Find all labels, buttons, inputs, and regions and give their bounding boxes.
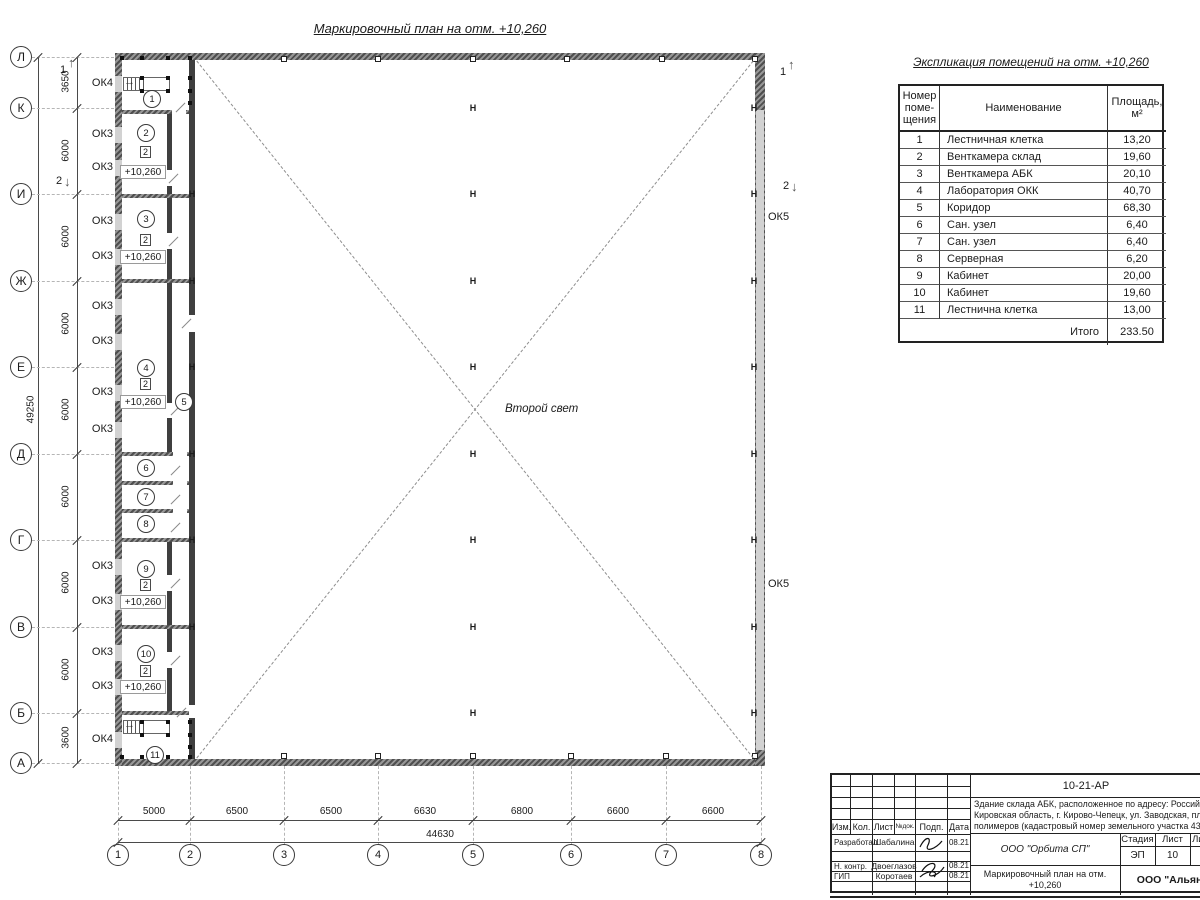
column-dot-0: [120, 56, 124, 60]
grid-axis-stub-row-В: [32, 627, 114, 628]
door-leaf-5: [171, 466, 181, 476]
tb-date: 08.21: [948, 861, 970, 871]
door-opening-3: [167, 233, 172, 249]
steel-column-symbol: H: [749, 189, 759, 199]
expl-row-area: 68,30: [1108, 200, 1166, 217]
door-opening-1: [189, 705, 195, 718]
expl-row-name: Венткамера АБК: [940, 166, 1108, 183]
door-leaf-6: [171, 495, 181, 505]
section-mark-arrow: ↓: [64, 174, 71, 189]
tb-stage-value: 10: [1155, 846, 1190, 865]
steel-column-symbol: H: [187, 449, 197, 459]
grid-bubble-row-К: К: [10, 97, 32, 119]
section-mark-arrow: ↑: [788, 57, 795, 72]
tb-header-cell: Подп.: [916, 820, 947, 833]
wall-top: [115, 53, 765, 60]
grid-axis-stub-row-Ж: [32, 281, 114, 282]
dim-line-vertical-segments: [77, 57, 78, 763]
door-opening-5: [167, 575, 172, 591]
level-mark: +10,260: [120, 680, 166, 694]
tb-header-cell: Лист: [873, 820, 894, 833]
expl-row-area: 20,10: [1108, 166, 1166, 183]
window-ок3-8: [115, 422, 122, 438]
wall-room-divider-2: [122, 279, 189, 283]
expl-row-area: 6,20: [1108, 251, 1166, 268]
window-label-ok5: ОК5: [768, 578, 789, 590]
section-mark-number: 1: [780, 66, 786, 78]
tb-hline: [832, 786, 970, 787]
expl-row-name: Лаборатория ОКК: [940, 183, 1108, 200]
column-dot-16: [166, 720, 170, 724]
expl-row-name: Коридор: [940, 200, 1108, 217]
tb-role: ГИП: [834, 872, 874, 882]
wall-bottom: [115, 759, 765, 766]
window-label-ок3: ОК3: [86, 386, 113, 398]
window-ок4-13: [115, 732, 122, 748]
stair-arrow-1: →: [124, 76, 135, 88]
tb-hline: [832, 797, 970, 798]
grid-bubble-col-2: 2: [179, 844, 201, 866]
section-mark-number: 2: [56, 175, 62, 187]
expl-row-area: 13,20: [1108, 132, 1166, 149]
steel-column-symbol: H: [468, 449, 478, 459]
explication-title: Экспликация помещений на отм. +10,260: [898, 55, 1164, 69]
column-dot-19: [166, 733, 170, 737]
grid-axis-stub-row-И: [32, 194, 114, 195]
expl-row-name: Кабинет: [940, 268, 1108, 285]
steel-column-symbol: H: [187, 362, 197, 372]
column-square-1: [375, 56, 381, 62]
room-number-4: 4: [137, 359, 155, 377]
signatures: [916, 833, 948, 881]
tb-date: 08.21: [948, 834, 970, 851]
dim-text-horizontal: 6800: [492, 806, 552, 817]
expl-row-num: 7: [900, 234, 940, 251]
tb-hline: [970, 797, 1200, 798]
window-label-ок3: ОК3: [86, 335, 113, 347]
expl-row-num: 5: [900, 200, 940, 217]
column-dot-17: [188, 720, 192, 724]
grid-bubble-row-Л: Л: [10, 46, 32, 68]
expl-row-name: Лестнична клетка: [940, 302, 1108, 319]
grid-axis-stub-col-6: [571, 766, 572, 846]
tb-org: ООО "Орбита СП": [970, 833, 1120, 865]
dim-text-vertical: 6000: [61, 380, 72, 440]
dim-line-horizontal-overall: [118, 842, 761, 843]
column-dot-14: [188, 755, 192, 759]
dim-text-horizontal: 6630: [395, 806, 455, 817]
tb-role: Разработал: [834, 838, 874, 848]
window-ок3-5: [115, 299, 122, 315]
door-opening-4: [167, 403, 172, 418]
stair-tread-11-2: [135, 721, 136, 733]
title-block: Изм.Кол.Лист№док.Подп.ДатаРазработалШаба…: [830, 773, 1200, 893]
level-mark: +10,260: [120, 165, 166, 179]
drawing-sheet: Маркировочный план на отм. +10,260 HHHHH…: [0, 0, 1200, 900]
tb-hline: [832, 808, 970, 809]
window-label-ок3: ОК3: [86, 680, 113, 692]
window-ок4-0: [115, 76, 122, 92]
column-dot-21: [188, 745, 192, 749]
column-dot-9: [188, 89, 192, 93]
window-label-ок3: ОК3: [86, 560, 113, 572]
grid-bubble-col-3: 3: [273, 844, 295, 866]
steel-column-symbol: H: [468, 362, 478, 372]
floor-plan: HHHHHHHHHHHHHHHHHHHHHH→→ЛКИЖЕДГВБА365060…: [0, 0, 830, 900]
column-square-0: [281, 56, 287, 62]
grid-bubble-row-И: И: [10, 183, 32, 205]
grid-axis-stub-col-2: [190, 766, 191, 846]
expl-header-num: Номер поме- щения: [900, 86, 940, 132]
stair-tread-1-2: [135, 78, 136, 90]
dim-line-vertical-overall: [38, 57, 39, 763]
level-mark: +10,260: [120, 595, 166, 609]
window-ок3-1: [115, 127, 122, 143]
expl-row-num: 6: [900, 217, 940, 234]
expl-row-area: 20,00: [1108, 268, 1166, 285]
tb-stage-header: Лист: [1155, 833, 1190, 846]
steel-column-symbol: H: [468, 276, 478, 286]
expl-row-name: Серверная: [940, 251, 1108, 268]
grid-bubble-row-Ж: Ж: [10, 270, 32, 292]
dim-text-vertical: 6000: [61, 207, 72, 267]
expl-row-name: Венткамера склад: [940, 149, 1108, 166]
unit-mark: 2: [140, 378, 151, 390]
column-dot-8: [166, 89, 170, 93]
door-opening-9: [173, 481, 187, 485]
steel-column-symbol: H: [468, 189, 478, 199]
expl-row-num: 3: [900, 166, 940, 183]
window-label-ок3: ОК3: [86, 300, 113, 312]
unit-mark: 2: [140, 234, 151, 246]
tb-object-desc-line: Здание склада АБК, расположенное по адре…: [974, 799, 1200, 810]
window-label-ок3: ОК3: [86, 423, 113, 435]
tb-hline: [832, 881, 970, 882]
expl-row-name: Сан. узел: [940, 217, 1108, 234]
grid-axis-stub-col-4: [378, 766, 379, 846]
window-label-ок3: ОК3: [86, 595, 113, 607]
section-mark-arrow: ↑: [68, 55, 75, 70]
room-number-11: 11: [146, 746, 164, 764]
window-label-ок3: ОК3: [86, 215, 113, 227]
expl-row-area: 40,70: [1108, 183, 1166, 200]
window-ок3-6: [115, 334, 122, 350]
dim-text-vertical: 6000: [61, 553, 72, 613]
column-square-10: [663, 753, 669, 759]
grid-bubble-col-7: 7: [655, 844, 677, 866]
dim-text-horizontal: 5000: [124, 806, 184, 817]
steel-column-symbol: H: [749, 362, 759, 372]
steel-column-symbol: H: [749, 276, 759, 286]
window-label-ок3: ОК3: [86, 250, 113, 262]
steel-column-symbol: H: [468, 622, 478, 632]
dim-text-vertical: 6000: [61, 467, 72, 527]
column-dot-13: [166, 755, 170, 759]
expl-total-label: Итого: [900, 319, 1108, 345]
window-label-ok5: ОК5: [768, 211, 789, 223]
tb-hline: [832, 851, 970, 852]
grid-axis-stub-row-К: [32, 108, 114, 109]
grid-bubble-row-Б: Б: [10, 702, 32, 724]
expl-row-name: Сан. узел: [940, 234, 1108, 251]
column-dot-3: [188, 56, 192, 60]
grid-bubble-col-8: 8: [750, 844, 772, 866]
grid-bubble-row-А: А: [10, 752, 32, 774]
steel-column-symbol: H: [468, 708, 478, 718]
expl-row-area: 19,60: [1108, 285, 1166, 302]
expl-row-num: 2: [900, 149, 940, 166]
tb-object-desc-line: полимеров (кадастровый номер земельного …: [974, 821, 1200, 832]
steel-column-symbol: H: [187, 276, 197, 286]
tb-doc-title: Маркировочный план на отм. +10,260: [972, 865, 1118, 895]
expl-row-num: 1: [900, 132, 940, 149]
column-dot-7: [140, 89, 144, 93]
dim-text-vertical: 6000: [61, 121, 72, 181]
column-dot-12: [140, 755, 144, 759]
steel-column-symbol: H: [749, 535, 759, 545]
grid-axis-stub-row-Д: [32, 454, 114, 455]
wall-room-divider-7: [122, 625, 189, 629]
grid-bubble-row-Г: Г: [10, 529, 32, 551]
sheet-frame-bottom: [830, 896, 1200, 898]
section-mark-arrow: ↓: [791, 179, 798, 194]
door-opening-2: [167, 170, 172, 186]
dim-text-overall-horizontal: 44630: [403, 829, 477, 840]
door-opening-7: [172, 110, 186, 114]
grid-bubble-col-4: 4: [367, 844, 389, 866]
dim-text-horizontal: 6600: [683, 806, 743, 817]
expl-row-area: 13,00: [1108, 302, 1166, 319]
tb-name: Коротаев: [873, 871, 915, 881]
window-label-ок3: ОК3: [86, 646, 113, 658]
tb-stage-header: Листов: [1190, 833, 1200, 846]
expl-row-num: 8: [900, 251, 940, 268]
door-opening-8: [173, 452, 187, 456]
column-dot-18: [140, 733, 144, 737]
tb-header-cell: Кол.: [851, 820, 872, 833]
expl-row-num: 4: [900, 183, 940, 200]
column-dot-2: [166, 56, 170, 60]
tb-doc-code: 10-21-АР: [970, 775, 1200, 797]
window-ok5: [756, 110, 764, 750]
dim-text-horizontal: 6500: [207, 806, 267, 817]
steel-column-symbol: H: [749, 449, 759, 459]
grid-axis-stub-row-А: [32, 763, 114, 764]
door-leaf-9: [171, 656, 181, 666]
window-ок3-3: [115, 214, 122, 230]
grid-axis-stub-col-7: [666, 766, 667, 846]
section-mark-number: 2: [783, 180, 789, 192]
second-light-label: Второй свет: [505, 403, 578, 415]
dim-text-horizontal: 6600: [588, 806, 648, 817]
steel-column-symbol: H: [749, 103, 759, 113]
room-number-2: 2: [137, 124, 155, 142]
door-opening-6: [167, 652, 172, 668]
steel-column-symbol: H: [187, 189, 197, 199]
room-number-3: 3: [137, 210, 155, 228]
wall-room-divider-6: [122, 538, 189, 542]
unit-mark: 2: [140, 146, 151, 158]
door-opening-10: [173, 509, 187, 513]
window-label-ок4: ОК4: [86, 77, 113, 89]
door-leaf-7: [171, 523, 181, 533]
room-number-7: 7: [137, 488, 155, 506]
section-mark-number: 1: [60, 64, 66, 76]
tb-company2: ООО "Альянс: [1120, 865, 1200, 895]
column-square-8: [470, 753, 476, 759]
wall-corridor-east: [189, 60, 195, 759]
column-dot-11: [120, 755, 124, 759]
tb-name: Шабалина: [873, 834, 915, 851]
dim-text-vertical: 3600: [61, 708, 72, 768]
room-number-5: 5: [175, 393, 193, 411]
dim-text-vertical: 6000: [61, 640, 72, 700]
steel-column-symbol: H: [187, 535, 197, 545]
dim-text-horizontal: 6500: [301, 806, 361, 817]
expl-total-value: 233.50: [1108, 319, 1166, 345]
room-explication-table: Номер поме- щенияНаименованиеПлощадь, м²…: [898, 84, 1164, 343]
expl-row-num: 11: [900, 302, 940, 319]
room-number-6: 6: [137, 459, 155, 477]
stair-arrow-11: →: [124, 719, 135, 731]
window-label-ок3: ОК3: [86, 161, 113, 173]
column-dot-10: [188, 101, 192, 105]
steel-column-symbol: H: [187, 622, 197, 632]
tb-header-cell: №док.: [895, 820, 915, 833]
grid-bubble-col-1: 1: [107, 844, 129, 866]
dim-text-overall-vertical: 49250: [26, 370, 37, 450]
window-label-ок4: ОК4: [86, 733, 113, 745]
column-dot-4: [140, 76, 144, 80]
tb-stage-header: Стадия: [1120, 833, 1155, 846]
expl-row-num: 10: [900, 285, 940, 302]
unit-mark: 2: [140, 579, 151, 591]
column-dot-20: [188, 733, 192, 737]
tb-stage-value: 1: [1190, 846, 1200, 865]
expl-row-area: 19,60: [1108, 149, 1166, 166]
grid-axis-stub-col-1: [118, 766, 119, 846]
expl-row-num: 9: [900, 268, 940, 285]
tb-name: Двоеглазов: [873, 861, 915, 871]
grid-axis-stub-col-8: [761, 766, 762, 846]
level-mark: +10,260: [120, 395, 166, 409]
expl-row-name: Лестничная клетка: [940, 132, 1108, 149]
column-square-4: [659, 56, 665, 62]
grid-axis-stub-row-Г: [32, 540, 114, 541]
column-square-9: [568, 753, 574, 759]
tb-date: 08.21: [948, 871, 970, 881]
column-dot-6: [188, 76, 192, 80]
unit-mark: 2: [140, 665, 151, 677]
steel-column-symbol: H: [749, 622, 759, 632]
steel-column-symbol: H: [468, 103, 478, 113]
grid-bubble-col-5: 5: [462, 844, 484, 866]
column-square-2: [470, 56, 476, 62]
tb-stage-value: ЭП: [1120, 846, 1155, 865]
level-mark: +10,260: [120, 250, 166, 264]
expl-header-name: Наименование: [940, 86, 1108, 132]
room-number-9: 9: [137, 560, 155, 578]
tb-role: Н. контр.: [834, 862, 874, 872]
column-square-7: [375, 753, 381, 759]
dim-text-vertical: 6000: [61, 294, 72, 354]
window-ок3-11: [115, 645, 122, 661]
door-leaf-8: [171, 579, 181, 589]
expl-row-area: 6,40: [1108, 217, 1166, 234]
grid-bubble-row-В: В: [10, 616, 32, 638]
window-label-ок3: ОК3: [86, 128, 113, 140]
room-number-1: 1: [143, 90, 161, 108]
steel-column-symbol: H: [468, 535, 478, 545]
grid-axis-stub-row-Е: [32, 367, 114, 368]
steel-column-symbol: H: [749, 708, 759, 718]
window-ок3-9: [115, 559, 122, 575]
column-dot-1: [140, 56, 144, 60]
tb-object-desc-line: Кировская область, г. Кирово-Чепецк, ул.…: [974, 810, 1200, 821]
room-number-10: 10: [137, 645, 155, 663]
column-dot-15: [140, 720, 144, 724]
grid-axis-stub-row-Б: [32, 713, 114, 714]
grid-bubble-col-6: 6: [560, 844, 582, 866]
column-square-3: [564, 56, 570, 62]
tb-header-cell: Дата: [948, 820, 970, 833]
grid-axis-stub-col-3: [284, 766, 285, 846]
tb-header-cell: Изм.: [833, 820, 850, 833]
expl-row-area: 6,40: [1108, 234, 1166, 251]
wall-room-divider-1: [122, 194, 189, 198]
expl-header-area: Площадь, м²: [1108, 86, 1166, 132]
expl-row-name: Кабинет: [940, 285, 1108, 302]
column-dot-5: [166, 76, 170, 80]
room-number-8: 8: [137, 515, 155, 533]
column-square-6: [281, 753, 287, 759]
